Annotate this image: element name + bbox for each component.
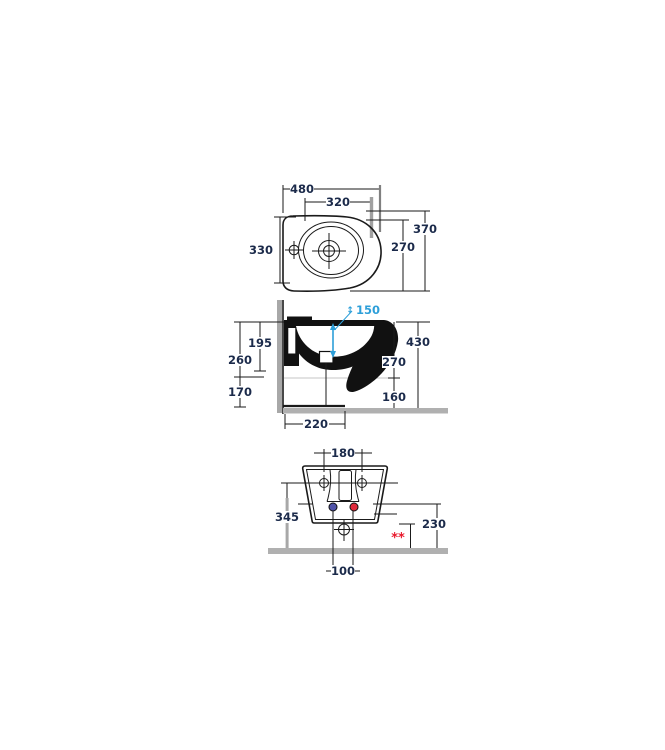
- dim-label-230: 230: [422, 517, 446, 531]
- rim-inner-edge: [299, 222, 364, 278]
- front-view: 180 100 345: [268, 446, 448, 578]
- dim-label-270-side: 270: [382, 355, 406, 369]
- dim-label-430: 430: [406, 335, 430, 349]
- drawing-canvas: 480 320 330 370 27: [0, 0, 665, 750]
- dim-label-220: 220: [304, 417, 328, 431]
- dim-label-170: 170: [228, 385, 252, 399]
- dim-label-150: 150: [356, 303, 380, 317]
- dim-label-320: 320: [326, 195, 350, 209]
- dim-label-180: 180: [331, 446, 355, 460]
- mounting-bracket: [288, 328, 296, 355]
- hot-water-connection: [350, 503, 358, 511]
- dim-label-370: 370: [413, 222, 437, 236]
- center-slot: [339, 471, 352, 501]
- bidet-front-inner-line: [307, 470, 384, 520]
- cold-water-connection: [329, 503, 337, 511]
- updown-arrow-icon: ↕: [346, 306, 354, 316]
- dim-label-260: 260: [228, 353, 252, 367]
- dim-label-345: 345: [275, 510, 299, 524]
- footnote-marker: **: [391, 531, 405, 546]
- floor: [268, 548, 448, 554]
- top-view: 480 320 330 370 27: [249, 182, 437, 291]
- dim-label-270-plan: 270: [391, 240, 415, 254]
- wall: [277, 300, 282, 413]
- dim-label-100: 100: [331, 564, 355, 578]
- dim-label-195: 195: [248, 336, 272, 350]
- dim-label-160: 160: [382, 390, 406, 404]
- side-view: ↕ 150 195 260 170 430 270 160 220: [228, 300, 448, 431]
- floor: [283, 408, 448, 414]
- bidet-technical-drawing: 480 320 330 370 27: [0, 0, 665, 750]
- supply-pipe-mark-left: [370, 197, 373, 238]
- dim-label-330: 330: [249, 243, 273, 257]
- dim-label-480: 480: [290, 182, 314, 196]
